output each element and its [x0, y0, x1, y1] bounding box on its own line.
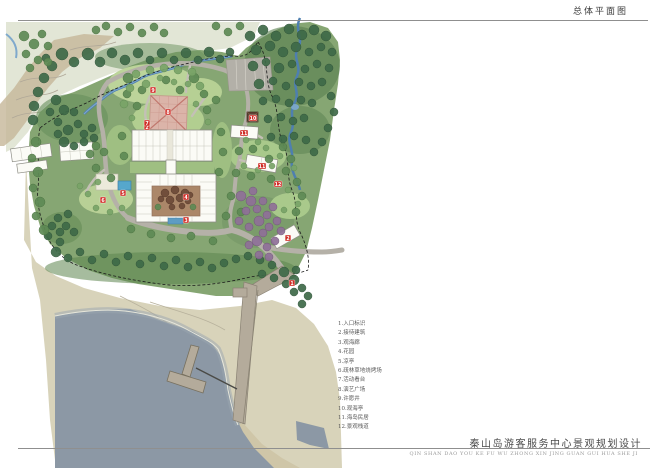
legend-item: 3.观海廊 — [338, 339, 382, 348]
map-marker-8: 8 — [165, 109, 171, 116]
map-marker-5: 5 — [120, 190, 126, 197]
sheet-title: 总体平面图 — [573, 4, 628, 17]
map-marker-4: 4 — [183, 194, 189, 201]
legend-item: 7.活动看台 — [338, 376, 382, 385]
project-title-pinyin: QIN SHAN DAO YOU KE FU WU ZHONG XIN JING… — [410, 451, 638, 457]
pool — [118, 181, 131, 190]
map-marker-2: 2 — [285, 235, 291, 242]
legend-item: 10.观海亭 — [338, 405, 382, 414]
svg-text:2: 2 — [286, 236, 289, 242]
legend-item: 8.演艺广场 — [338, 386, 382, 395]
legend-item: 1.入口标识 — [338, 320, 382, 329]
map-marker-9: 9 — [150, 87, 156, 94]
legend-item: 4.花园 — [338, 348, 382, 357]
svg-text:7: 7 — [145, 121, 148, 127]
svg-text:5: 5 — [121, 191, 124, 197]
map-marker-3: 3 — [183, 217, 189, 224]
svg-text:10: 10 — [250, 116, 257, 122]
legend-item: 5.凉亭 — [338, 358, 382, 367]
legend-item: 11.海岛民居 — [338, 414, 382, 423]
map-marker-10: 10 — [249, 115, 257, 122]
svg-text:11: 11 — [259, 164, 266, 170]
visitor-center-north-wing — [132, 130, 212, 161]
legend-item: 2.接待建筑 — [338, 329, 382, 338]
legend-item: 9.许愿井 — [338, 395, 382, 404]
top-rule — [18, 20, 648, 21]
map-marker-12: 12 — [274, 181, 282, 188]
map-marker-11: 11 — [258, 163, 266, 170]
map-marker-6: 6 — [100, 197, 106, 204]
connector-corridor — [166, 160, 176, 175]
project-title: 秦山岛游客服务中心景观规划设计 — [470, 435, 643, 450]
legend-list: 1.入口标识2.接待建筑3.观海廊4.花园5.凉亭6.疏林草地烧烤场7.活动看台… — [338, 320, 382, 433]
svg-text:1: 1 — [290, 281, 293, 287]
svg-text:12: 12 — [275, 182, 282, 188]
map-marker-11: 11 — [240, 130, 248, 137]
svg-text:3: 3 — [184, 218, 187, 224]
legend-item: 6.疏林草地烧烤场 — [338, 367, 382, 376]
map-marker-1: 1 — [289, 280, 295, 287]
svg-text:11: 11 — [241, 131, 248, 137]
water-feature — [168, 218, 183, 224]
legend-item: 12.景观栈道 — [338, 423, 382, 432]
site-plan-map: 122345678910111112 — [0, 0, 662, 468]
plan-sheet: 122345678910111112 总体平面图 1.入口标识2.接待建筑3.观… — [0, 0, 662, 468]
map-marker-7: 7 — [144, 120, 150, 127]
